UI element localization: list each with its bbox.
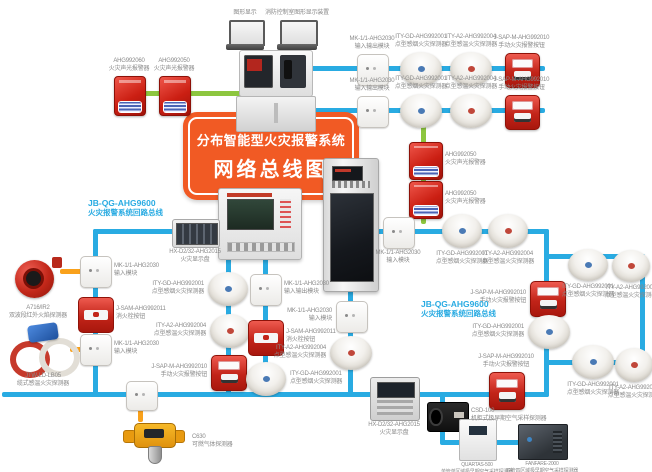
air-sampling-quartas-part <box>469 426 486 435</box>
loop-control-panel-part <box>227 242 295 252</box>
input-module-left-1-part <box>80 256 112 288</box>
sound-light-alarm-top-1-part <box>119 80 142 83</box>
heat-detector-mid-1-part <box>227 328 234 334</box>
fire-display-panel-2-label: HX-D2/32-AHG2015火灾显示盘 <box>362 422 426 437</box>
device-name-text: 输入模块 <box>114 349 210 357</box>
gas-detector-part <box>148 446 162 464</box>
cable-heat-detector <box>10 324 76 370</box>
device-model-text: J-SAM-AHG992011 <box>286 329 382 337</box>
device-name-text: 手动火灾报警按钮 <box>490 43 554 51</box>
loop-control-cabinet-part <box>332 166 364 181</box>
smoke-detector-top-2 <box>400 94 442 128</box>
device-model-text: ITY-A2-AHG992004 <box>602 385 652 393</box>
input-module-cab-label: MK-1/1-AHG2030输入模块 <box>266 308 332 323</box>
input-module-gas-part <box>135 393 138 396</box>
input-module-right-part <box>383 217 415 249</box>
input-module-left-1 <box>80 256 110 286</box>
device-name-text: 点型感温火灾探测器 <box>476 259 540 267</box>
sound-light-alarm-right-2 <box>409 181 443 219</box>
device-model-text: J-SAP-M-AHG992010 <box>490 77 554 85</box>
device-name-text: 输入模块 <box>114 271 210 279</box>
smoke-detector-mid-2 <box>246 362 286 396</box>
device-model-text: ITY-A2-AHG992004 <box>260 345 326 353</box>
loop-bus-caption: JB-QG-AHG9600火灾报警系统回路总线 <box>88 198 208 218</box>
flame-detector <box>14 256 62 302</box>
device-name-text: 缆式感温火灾探测器 <box>11 381 75 389</box>
heat-detector-right-1 <box>488 214 528 248</box>
air-sampling-fanfare-part <box>553 431 563 453</box>
heat-detector-top-2 <box>450 94 492 128</box>
smoke-detector-mid-2-label: ITY-GD-AHG992001点型感烟火灾探测器 <box>290 371 386 386</box>
device-name-text: 火灾声光报警器 <box>445 199 541 207</box>
hydrant-button-left <box>78 297 114 333</box>
sound-light-alarm-top-1 <box>114 76 146 116</box>
sound-light-alarm-right-1-part <box>414 146 438 149</box>
smoke-detector-right-2 <box>528 315 570 349</box>
gas-detector <box>120 420 188 464</box>
io-module-top-1-part <box>366 67 369 70</box>
device-name-text: 消火栓按钮 <box>286 337 382 345</box>
sound-light-alarm-right-2-part <box>414 206 438 215</box>
device-name-text: 点型感温火灾探测器 <box>602 393 652 401</box>
sound-light-alarm-top-2-part <box>164 102 187 112</box>
device-model-text: MK-1/1-AHG2030 <box>114 341 210 349</box>
hydrant-button-left-label: J-SAM-AHG992011消火栓按钮 <box>116 306 212 321</box>
control-console <box>236 50 314 132</box>
flame-detector-label: A716/IR2双波段红外火焰探测器 <box>6 305 70 320</box>
air-sampling-fanfare <box>518 424 568 460</box>
io-module-top-2-part <box>357 96 389 128</box>
device-name-text: 四管四区域极早期空气采样探测器 <box>502 468 582 472</box>
heat-detector-top-2-part <box>468 108 475 114</box>
manual-call-point-bottom-label: J-SAP-M-AHG992010手动火灾报警按钮 <box>474 354 538 369</box>
heat-detector-right-1-label: ITY-A2-AHG992004点型感温火灾探测器 <box>476 251 540 266</box>
input-module-left-2 <box>80 334 110 364</box>
device-model-text: ITY-GD-AHG992001 <box>290 371 386 379</box>
io-module-mid-1-part <box>250 274 282 306</box>
device-name-text: 点型感烟火灾探测器 <box>290 379 386 387</box>
device-name-text: 消防控制室图形显示装置 <box>265 10 329 18</box>
air-sampling-csd-part <box>431 410 441 425</box>
device-model-text: MK-1/1-AHG2030 <box>266 308 332 316</box>
smoke-detector-mid-1-label: ITY-GD-AHG992001点型感烟火灾探测器 <box>138 281 204 296</box>
input-module-gas <box>126 381 156 409</box>
manual-call-point-bottom-part <box>499 392 516 402</box>
device-name-text: 手动火灾报警按钮 <box>474 362 538 370</box>
loop-control-cabinet-part <box>330 193 373 282</box>
device-model-text: MK-1/1-AHG2030 <box>114 263 210 271</box>
fire-display-panel-1-part <box>176 223 218 245</box>
loop-control-cabinet-part <box>332 181 371 188</box>
smoke-detector-right-1-part <box>459 228 466 234</box>
heat-detector-cab-label: ITY-A2-AHG992004点型感温火灾探测器 <box>260 345 326 360</box>
sound-light-alarm-right-1-label: AHG992050火灾声光报警器 <box>445 152 541 167</box>
device-name-text: 点型感温火灾探测器 <box>599 293 652 301</box>
manual-call-point-bottom-part <box>496 379 518 388</box>
device-model-text: AHG992050 <box>445 152 541 160</box>
air-sampling-csd-label: CSD-100机柜式极早期空气采样探测器 <box>471 408 567 423</box>
smoke-detector-mid-2-part <box>263 376 270 382</box>
loop-bus-name-text: 火灾报警系统回路总线 <box>421 309 541 319</box>
device-name-text: 火灾声光报警器 <box>445 160 541 168</box>
smoke-detector-right-3 <box>568 249 608 281</box>
hydrant-button-mid-label: J-SAM-AHG992011消火栓按钮 <box>286 329 382 344</box>
device-name-text: 点型感温火灾探测器 <box>260 353 326 361</box>
device-model-text: ITY-GD-AHG992001 <box>458 324 524 332</box>
air-sampling-csd-part <box>454 412 464 418</box>
device-model-text: HX-D2/32-AHG2015 <box>163 249 227 257</box>
sound-light-alarm-top-1-part <box>119 102 142 112</box>
sound-light-alarm-top-2 <box>159 76 191 116</box>
smoke-detector-right-2-label: ITY-GD-AHG992001点型感烟火灾探测器 <box>458 324 524 339</box>
loop-bus-model-text: JB-QG-AHG9600 <box>421 299 541 309</box>
manual-call-point-mid-1 <box>211 355 247 391</box>
device-model-text: AHG992050 <box>445 191 541 199</box>
control-console-part <box>280 55 307 88</box>
manual-call-point-top-2-part <box>514 113 531 122</box>
manual-call-point-top-1-part <box>512 59 534 68</box>
device-model-text: J-SAP-M-AHG992010 <box>474 354 538 362</box>
manual-call-point-top-2-label: J-SAP-M-AHG992010手动火灾报警按钮 <box>490 77 554 92</box>
manual-call-point-top-1-label: J-SAP-M-AHG992010手动火灾报警按钮 <box>490 35 554 50</box>
input-module-left-1-label: MK-1/1-AHG2030输入模块 <box>114 263 210 278</box>
smoke-detector-right-4-part <box>590 359 597 365</box>
heat-detector-right-3 <box>615 348 652 382</box>
heat-detector-mid-1 <box>210 314 250 348</box>
title-line2: 网络总线图 <box>214 153 329 182</box>
input-module-cab-part <box>345 314 348 317</box>
cable-heat-detector-part <box>39 338 80 378</box>
device-name-text: 机柜式极早期空气采样探测器 <box>471 416 567 424</box>
loop-control-cabinet <box>323 158 379 292</box>
heat-detector-right-3-label: ITY-A2-AHG992004点型感温火灾探测器 <box>602 385 652 400</box>
device-name-text: 输入模块 <box>266 316 332 324</box>
gas-detector-part <box>144 429 163 439</box>
control-console-part <box>236 96 316 132</box>
loop-control-panel-part <box>227 193 272 198</box>
device-model-text: J-SAP-M-AHG992010 <box>141 364 207 372</box>
manual-call-point-mid-1-label: J-SAP-M-AHG992010手动火灾报警按钮 <box>141 364 207 379</box>
device-model-text: MK-1/1-AHG2030 <box>284 281 380 289</box>
io-module-top-2-part <box>366 109 369 112</box>
device-name-text: 手动火灾报警按钮 <box>490 85 554 93</box>
device-model-text: A716/IR2 <box>6 305 70 313</box>
manual-call-point-right-part <box>540 300 557 310</box>
manual-call-point-top-2-part <box>512 101 534 110</box>
input-module-right <box>383 217 413 247</box>
manual-call-point-mid-1-part <box>221 374 238 384</box>
air-sampling-quartas <box>459 419 497 461</box>
device-model-text: J-SAP-M-AHG992010 <box>490 35 554 43</box>
air-sampling-fanfare-part <box>527 437 532 442</box>
device-name-text: 双波段红外火焰探测器 <box>6 313 70 321</box>
loop-bus-caption: JB-QG-AHG9600火灾报警系统回路总线 <box>421 299 541 319</box>
device-name-text: 消火栓按钮 <box>116 314 212 322</box>
io-module-top-2 <box>357 96 387 126</box>
heat-detector-top-1-part <box>468 66 475 72</box>
heat-detector-right-1-part <box>505 228 512 234</box>
heat-detector-right-2 <box>612 250 650 282</box>
input-module-left-1-part <box>89 269 92 272</box>
title-line1: 分布智能型火灾报警系统 <box>197 130 346 149</box>
heat-detector-mid-1-label: ITY-A2-AHG992004点型感温火灾探测器 <box>140 323 206 338</box>
hydrant-button-mid-part <box>263 335 268 340</box>
device-model-text: C630 <box>192 434 288 442</box>
fire-display-panel-1 <box>172 219 220 248</box>
io-module-mid-1-label: MK-1/1-AHG2030输入输出模块 <box>284 281 380 296</box>
input-module-right-label: MK-1/1-AHG2030输入模块 <box>366 250 430 265</box>
io-module-mid-1 <box>250 274 280 304</box>
loop-control-panel-part <box>227 199 274 230</box>
device-model-text: ITY-GD-AHG992001 <box>138 281 204 289</box>
device-name-text: 火灾声光报警器 <box>142 66 206 74</box>
device-model-text: ITY-A2-AHG992004 <box>476 251 540 259</box>
device-name-text: 可燃气体探测器 <box>192 442 288 450</box>
device-name-text: 输入模块 <box>366 258 430 266</box>
heat-detector-right-2-label: ITY-A2-AHG992004点型感温火灾探测器 <box>599 285 652 300</box>
gas-detector-label: C630可燃气体探测器 <box>192 434 288 449</box>
input-module-left-2-label: MK-1/1-AHG2030输入模块 <box>114 341 210 356</box>
smoke-detector-right-2-part <box>546 329 553 335</box>
device-model-text: CSD-100 <box>471 408 567 416</box>
hydrant-button-left-part <box>93 312 98 317</box>
smoke-detector-mid-1 <box>208 272 248 306</box>
device-name-text: 手动火灾报警按钮 <box>141 372 207 380</box>
device-name-text: 输入输出模块 <box>284 289 380 297</box>
fire-display-panel-2-part <box>377 400 413 415</box>
smoke-detector-right-1 <box>442 214 482 248</box>
sound-light-alarm-right-1-part <box>414 167 438 176</box>
device-model-text: ITY-A2-AHG992004 <box>599 285 652 293</box>
loop-bus-model-text: JB-QG-AHG9600 <box>88 198 208 208</box>
laptop-left-part <box>229 20 265 46</box>
loop-control-panel <box>218 188 302 260</box>
input-module-gas-part <box>126 381 158 411</box>
smoke-detector-mid-1-part <box>225 286 232 292</box>
input-module-cab <box>336 301 366 331</box>
manual-call-point-top-2 <box>505 95 540 130</box>
sound-light-alarm-top-2-label: AHG992050火灾声光报警器 <box>142 58 206 73</box>
wire-line <box>60 269 82 274</box>
laptop-right <box>277 20 317 50</box>
sound-light-alarm-right-2-label: AHG992050火灾声光报警器 <box>445 191 541 206</box>
device-model-text: AHG992050 <box>142 58 206 66</box>
device-name-text: 点型感烟火灾探测器 <box>458 332 524 340</box>
device-name-text: 火灾显示盘 <box>362 430 426 438</box>
heat-detector-cab-part <box>348 350 355 356</box>
manual-call-point-mid-1-part <box>218 361 240 370</box>
device-model-text: J-SAP-M-AHG992010 <box>460 290 526 298</box>
smoke-detector-right-4 <box>572 345 614 379</box>
laptop-right-label: 消防控制室图形显示装置 <box>265 10 329 18</box>
device-model-text: J-SAM-AHG992011 <box>116 306 212 314</box>
device-name-text: 点型感温火灾探测器 <box>140 331 206 339</box>
loop-bus-name-text: 火灾报警系统回路总线 <box>88 208 208 218</box>
laptop-left <box>226 20 264 50</box>
air-sampling-fanfare-label: FANFARE-2000四管四区域极早期空气采样探测器 <box>502 461 582 472</box>
manual-call-point-bottom <box>489 372 525 410</box>
device-model-text: HX-D2/32-AHG2015 <box>362 422 426 430</box>
sound-light-alarm-top-2-part <box>164 80 187 83</box>
device-model-text: MK-1/1-AHG2030 <box>366 250 430 258</box>
sound-light-alarm-right-2-part <box>414 185 438 188</box>
device-model-text: ITY-A2-AHG992004 <box>140 323 206 331</box>
laptop-right-part <box>280 20 318 46</box>
diagram-canvas: 分布智能型火灾报警系统 网络总线图 图形显示消防控制室图形显示装置AHG9920… <box>0 0 652 472</box>
input-module-left-2-part <box>89 347 92 350</box>
loop-control-panel-part <box>280 199 291 228</box>
device-model-text: JTW-LD-LB05 <box>11 373 75 381</box>
control-console-part <box>244 55 274 88</box>
cable-heat-detector-label: JTW-LD-LB05缆式感温火灾探测器 <box>11 373 75 388</box>
sound-light-alarm-right-1 <box>409 142 443 180</box>
input-module-right-part <box>392 230 395 233</box>
device-name-text: 点型感烟火灾探测器 <box>138 289 204 297</box>
smoke-detector-top-2-part <box>418 108 425 114</box>
fire-display-panel-1-label: HX-D2/32-AHG2015火灾显示盘 <box>163 249 227 264</box>
io-module-mid-1-part <box>259 287 262 290</box>
smoke-detector-top-1-part <box>418 66 425 72</box>
heat-detector-right-3-part <box>631 362 638 368</box>
input-module-left-2-part <box>80 334 112 366</box>
